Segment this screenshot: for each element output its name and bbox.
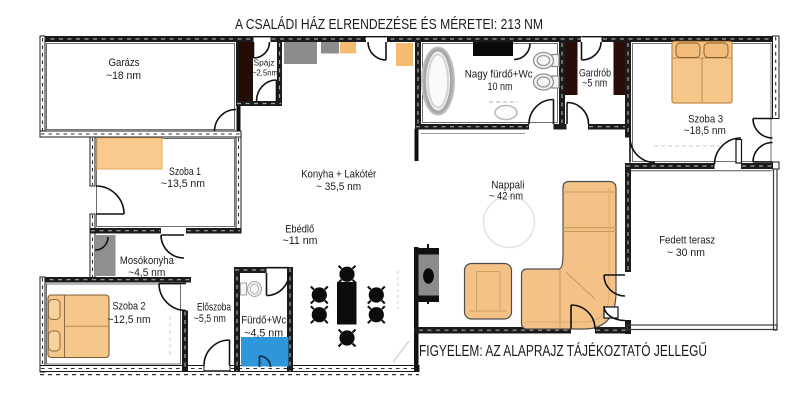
svg-text:Nagy fürdő+Wc: Nagy fürdő+Wc <box>465 69 533 81</box>
svg-text:Fürdő+Wc: Fürdő+Wc <box>241 315 286 327</box>
svg-text:~ 35,5 nm: ~ 35,5 nm <box>316 181 361 193</box>
svg-text:Konyha + Lakótér: Konyha + Lakótér <box>301 169 376 181</box>
svg-text:10 nm: 10 nm <box>488 81 513 93</box>
svg-text:Előszoba: Előszoba <box>197 302 232 314</box>
svg-text:~4,5 nm: ~4,5 nm <box>128 267 165 279</box>
svg-text:~18 nm: ~18 nm <box>106 70 141 82</box>
svg-text:Szoba 1: Szoba 1 <box>169 166 201 178</box>
svg-text:~18,5 nm: ~18,5 nm <box>684 125 726 137</box>
svg-text:~13,5 nm: ~13,5 nm <box>161 178 205 190</box>
svg-text:~ 30 nm: ~ 30 nm <box>667 247 705 259</box>
svg-text:~4,5 nm: ~4,5 nm <box>244 328 283 340</box>
svg-text:Spájz: Spájz <box>254 58 275 68</box>
svg-text:Ebédlő: Ebédlő <box>285 224 314 236</box>
svg-text:Mosókonyha: Mosókonyha <box>120 255 175 267</box>
svg-text:~2,5nm: ~2,5nm <box>252 68 278 78</box>
svg-text:~5 nm: ~5 nm <box>582 78 607 90</box>
svg-text:Szoba 2: Szoba 2 <box>113 301 146 313</box>
svg-text:FIGYELEM: AZ ALAPRAJZ TÁJÉKOZT: FIGYELEM: AZ ALAPRAJZ TÁJÉKOZTATÓ JELLEG… <box>419 343 707 360</box>
svg-text:A CSALÁDI HÁZ ELRENDEZÉSE ÉS M: A CSALÁDI HÁZ ELRENDEZÉSE ÉS MÉRETEI: 21… <box>235 16 543 33</box>
svg-text:~11 nm: ~11 nm <box>283 235 318 247</box>
svg-text:Fedett terasz: Fedett terasz <box>659 235 715 247</box>
svg-text:Garázs: Garázs <box>109 57 140 69</box>
svg-text:Szoba 3: Szoba 3 <box>688 114 723 126</box>
svg-text:~12,5 nm: ~12,5 nm <box>108 314 151 326</box>
svg-text:~ 42 nm: ~ 42 nm <box>489 191 523 203</box>
svg-text:~5,5 nm: ~5,5 nm <box>194 313 226 325</box>
